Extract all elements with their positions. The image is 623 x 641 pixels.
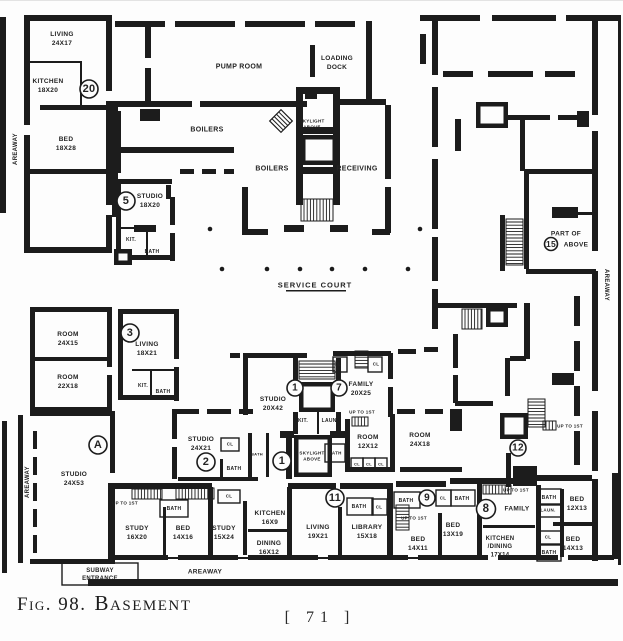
partition-wall bbox=[286, 290, 346, 292]
room-label: LIVING19X21 bbox=[306, 524, 329, 540]
partition-wall bbox=[618, 15, 621, 565]
room-label: SERVICE COURT bbox=[278, 281, 353, 290]
stair-hatch bbox=[506, 219, 523, 265]
wall-segment bbox=[118, 309, 123, 397]
shaft-opening bbox=[505, 418, 524, 435]
wall-segment bbox=[24, 15, 30, 125]
room-label: LIVING24X17 bbox=[50, 31, 73, 47]
wall-segment bbox=[40, 105, 108, 110]
wall-segment bbox=[545, 71, 575, 77]
wall-segment bbox=[420, 34, 426, 64]
fixture-solid bbox=[140, 109, 160, 121]
fixture-solid bbox=[578, 212, 594, 215]
wall-segment bbox=[24, 15, 112, 21]
wall-segment bbox=[592, 15, 598, 115]
room-label: AREAWAY bbox=[13, 133, 19, 165]
partition-wall bbox=[33, 483, 37, 501]
room-label: BATH bbox=[156, 389, 171, 395]
wall-segment bbox=[330, 225, 348, 232]
wall-segment bbox=[424, 347, 438, 352]
room-label: BATH bbox=[542, 550, 557, 556]
wall-segment bbox=[443, 71, 473, 77]
room-label: LAUN. bbox=[322, 418, 339, 424]
wall-segment bbox=[612, 473, 618, 559]
wall-segment bbox=[340, 99, 386, 105]
room-label: AREAWAY bbox=[25, 466, 31, 498]
wall-segment bbox=[118, 395, 178, 400]
wall-segment bbox=[178, 477, 258, 481]
room-label: PUMP ROOM bbox=[216, 63, 263, 70]
room-label: UP TO 1ST bbox=[503, 488, 529, 493]
wall-segment bbox=[106, 215, 112, 251]
wall-segment bbox=[592, 271, 598, 391]
unit-number: 2 bbox=[203, 456, 209, 468]
column-dot bbox=[406, 267, 411, 272]
wall-segment bbox=[510, 356, 526, 361]
wall-segment bbox=[88, 579, 618, 586]
wall-segment bbox=[175, 21, 235, 27]
column-dot bbox=[220, 267, 225, 272]
column-dot bbox=[298, 267, 303, 272]
room-label: KIT. bbox=[298, 418, 308, 424]
room-label: BATH bbox=[328, 451, 341, 456]
room-label: ROOM22X18 bbox=[57, 374, 78, 390]
room-label: LOADINGDOCK bbox=[321, 55, 353, 71]
room-label: FAMILY bbox=[504, 505, 529, 512]
shaft-opening bbox=[119, 254, 128, 261]
wall-segment bbox=[488, 71, 533, 77]
wall-segment bbox=[420, 15, 480, 21]
unit-number: 8 bbox=[483, 503, 490, 515]
wall-segment bbox=[574, 386, 580, 416]
wall-segment bbox=[388, 387, 393, 417]
room-label: STUDIO20X42 bbox=[260, 396, 286, 412]
room-label: SUBWAYENTRANCE bbox=[82, 568, 118, 582]
shaft-opening bbox=[491, 312, 504, 323]
room-label: CL bbox=[227, 442, 234, 447]
wall-segment bbox=[200, 101, 307, 107]
partition-wall bbox=[248, 529, 288, 532]
wall-segment bbox=[175, 409, 199, 414]
wall-segment bbox=[330, 431, 346, 438]
room-label: RECEIVING bbox=[336, 165, 377, 172]
room-label: CL bbox=[226, 494, 233, 499]
unit-number: 9 bbox=[424, 493, 430, 504]
fixture-solid bbox=[552, 373, 574, 385]
unit-number: 7 bbox=[336, 383, 342, 394]
wall-segment bbox=[385, 187, 391, 233]
wall-segment bbox=[2, 421, 7, 573]
wall-segment bbox=[524, 169, 529, 269]
wall-segment bbox=[455, 401, 493, 406]
wall-segment bbox=[0, 17, 6, 213]
partition-wall bbox=[317, 412, 319, 434]
scanned-book-page: 205317A2111121598LIVING24X17KITCHEN18X20… bbox=[0, 0, 623, 641]
partition-wall bbox=[266, 433, 269, 477]
wall-segment bbox=[18, 415, 23, 563]
room-label: FAMILY20X25 bbox=[348, 381, 373, 397]
wall-segment bbox=[592, 479, 598, 561]
room-label: BOILERS bbox=[255, 165, 288, 172]
wall-segment bbox=[24, 135, 30, 251]
room-label: KITCHEN18X20 bbox=[33, 78, 64, 94]
wall-segment bbox=[397, 409, 415, 414]
room-label: LIVING18X21 bbox=[135, 341, 158, 357]
wall-segment bbox=[245, 21, 305, 27]
room-label: BED13X19 bbox=[443, 522, 463, 538]
wall-segment bbox=[310, 45, 315, 77]
room-label: BATH bbox=[167, 506, 182, 512]
room-label: BATH bbox=[251, 451, 263, 456]
wall-segment bbox=[287, 487, 292, 557]
wall-segment bbox=[385, 105, 391, 179]
room-label: BATH bbox=[145, 249, 160, 255]
wall-segment bbox=[526, 269, 596, 274]
wall-segment bbox=[172, 409, 177, 439]
room-label: CL bbox=[440, 496, 447, 501]
unit-number: 12 bbox=[512, 443, 524, 454]
skylight-hatch-diamond bbox=[270, 110, 293, 133]
room-label: UP TO 1ST bbox=[557, 424, 583, 429]
wall-segment bbox=[110, 411, 115, 473]
room-label: STUDIO18X20 bbox=[137, 193, 163, 209]
wall-segment bbox=[400, 467, 462, 472]
room-label: ROOM12X12 bbox=[357, 434, 378, 450]
wall-segment bbox=[432, 87, 438, 147]
partition-wall bbox=[553, 522, 595, 526]
room-label: UP TO 1ST bbox=[349, 410, 375, 415]
partition-wall bbox=[438, 513, 442, 557]
unit-number: 20 bbox=[83, 83, 96, 95]
wall-segment bbox=[333, 351, 391, 356]
room-label: STUDIO24X21 bbox=[188, 436, 214, 452]
wall-segment bbox=[115, 21, 165, 27]
unit-number: 3 bbox=[127, 327, 133, 339]
room-label: CL bbox=[335, 362, 342, 367]
wall-segment bbox=[242, 187, 248, 233]
room-label: KIT. bbox=[126, 237, 136, 243]
partition-wall bbox=[150, 371, 152, 397]
room-label: BED14X11 bbox=[408, 536, 428, 552]
partition-wall bbox=[33, 457, 37, 475]
room-label: BED14X16 bbox=[173, 525, 193, 541]
wall-segment bbox=[568, 555, 614, 560]
wall-segment bbox=[106, 15, 112, 91]
wall-segment bbox=[158, 179, 172, 184]
wall-segment bbox=[574, 431, 580, 465]
wall-segment bbox=[396, 481, 446, 487]
wall-segment bbox=[230, 353, 240, 358]
wall-segment bbox=[118, 309, 176, 314]
wall-segment bbox=[145, 68, 151, 103]
wall-segment bbox=[477, 483, 482, 557]
wall-segment bbox=[425, 409, 443, 414]
wall-segment bbox=[24, 169, 112, 174]
room-label: ROOM24X15 bbox=[57, 331, 78, 347]
wall-segment bbox=[505, 358, 510, 396]
wall-segment bbox=[453, 375, 458, 403]
unit-number: 15 bbox=[546, 239, 556, 249]
wall-segment bbox=[243, 353, 248, 415]
wall-segment bbox=[242, 229, 268, 235]
room-label: LIBRARY15X18 bbox=[352, 524, 383, 540]
room-label: CL bbox=[545, 535, 552, 540]
wall-segment bbox=[280, 431, 294, 438]
wall-segment bbox=[524, 303, 530, 359]
wall-segment bbox=[170, 197, 175, 225]
room-label: BATH bbox=[352, 504, 367, 510]
wall-segment bbox=[450, 478, 522, 484]
partition-wall bbox=[33, 535, 37, 553]
wall-segment bbox=[388, 353, 393, 379]
room-label: CL bbox=[376, 505, 383, 510]
fixture-solid bbox=[450, 409, 462, 431]
wall-segment bbox=[166, 185, 171, 199]
column-dot bbox=[418, 227, 423, 232]
wall-segment bbox=[180, 169, 194, 174]
wall-segment bbox=[526, 169, 596, 174]
room-label: BATH bbox=[455, 496, 470, 502]
partition-wall bbox=[243, 501, 247, 555]
partition-wall bbox=[33, 431, 37, 449]
room-label: BOILERS bbox=[190, 126, 223, 133]
stair-hatch bbox=[528, 399, 545, 427]
room-label: KITCHEN/DINING17X14 bbox=[486, 536, 515, 559]
room-label: DINING16X12 bbox=[257, 540, 282, 556]
partition-wall bbox=[33, 509, 37, 527]
wall-segment bbox=[284, 225, 304, 232]
wall-segment bbox=[432, 159, 438, 229]
room-label: BATH bbox=[399, 498, 414, 504]
wall-segment bbox=[366, 21, 372, 105]
stair-hatch bbox=[352, 417, 368, 426]
wall-segment bbox=[432, 237, 438, 281]
wall-segment bbox=[30, 307, 112, 312]
unit-number: A bbox=[94, 439, 102, 451]
wall-segment bbox=[145, 26, 151, 58]
room-label: CL bbox=[366, 461, 372, 466]
partition-wall bbox=[163, 507, 166, 555]
wall-segment bbox=[239, 409, 253, 414]
room-label: STUDY16X20 bbox=[125, 525, 149, 541]
wall-segment bbox=[172, 447, 177, 479]
wall-segment bbox=[174, 309, 179, 359]
shaft-opening bbox=[304, 387, 331, 408]
wall-segment bbox=[455, 119, 461, 151]
wall-segment bbox=[345, 419, 350, 469]
room-label: BATH bbox=[542, 495, 557, 501]
wall-segment bbox=[112, 101, 192, 107]
wall-segment bbox=[288, 483, 336, 489]
wall-segment bbox=[207, 409, 231, 414]
partition-wall bbox=[483, 525, 535, 528]
wall-segment bbox=[500, 215, 505, 271]
partition-wall bbox=[140, 557, 470, 559]
floor-plan: 205317A2111121598LIVING24X17KITCHEN18X20… bbox=[0, 1, 623, 593]
wall-segment bbox=[577, 111, 589, 127]
room-label: ROOM24X18 bbox=[409, 432, 430, 448]
fixture-solid bbox=[134, 225, 156, 232]
fixture-solid bbox=[552, 207, 578, 218]
page-number: [ 71 ] bbox=[0, 609, 623, 627]
wall-segment bbox=[106, 101, 112, 205]
unit-number: 11 bbox=[329, 492, 341, 504]
wall-segment bbox=[208, 487, 213, 557]
room-label: UP TO 1ST bbox=[112, 501, 138, 506]
partition-wall bbox=[220, 459, 223, 479]
room-label: PART OF bbox=[551, 230, 581, 237]
wall-segment bbox=[453, 334, 458, 368]
wall-segment bbox=[592, 131, 598, 251]
wall-segment bbox=[116, 179, 162, 184]
wall-segment bbox=[224, 169, 234, 174]
wall-segment bbox=[24, 247, 112, 253]
room-label: UP TO 1ST bbox=[401, 516, 427, 521]
column-dot bbox=[363, 267, 368, 272]
wall-segment bbox=[520, 119, 525, 171]
wall-segment bbox=[558, 115, 578, 120]
fixture-solid bbox=[305, 89, 317, 99]
room-label: LAUN. bbox=[540, 508, 555, 513]
wall-segment bbox=[390, 414, 395, 469]
room-label: CL bbox=[354, 461, 360, 466]
wall-segment bbox=[30, 357, 108, 361]
shaft-opening bbox=[306, 140, 333, 161]
wall-segment bbox=[432, 289, 438, 329]
room-label: ABOVE bbox=[564, 241, 589, 248]
wall-segment bbox=[340, 483, 392, 489]
wall-segment bbox=[315, 21, 355, 27]
room-label: BED18X28 bbox=[56, 136, 76, 152]
room-label: CL bbox=[373, 362, 380, 367]
wall-segment bbox=[492, 15, 556, 21]
wall-segment bbox=[574, 341, 580, 371]
room-label: STUDY15X24 bbox=[212, 525, 236, 541]
room-label: STUDIO24X53 bbox=[61, 471, 87, 487]
wall-segment bbox=[372, 229, 390, 235]
room-label: BED14X13 bbox=[563, 536, 583, 552]
wall-segment bbox=[387, 483, 393, 557]
shaft-opening bbox=[481, 107, 504, 124]
room-label: BED12X13 bbox=[567, 496, 587, 512]
wall-segment bbox=[30, 411, 115, 416]
room-label: KIT. bbox=[138, 383, 148, 389]
wall-segment bbox=[398, 349, 416, 354]
fixture-solid bbox=[513, 466, 537, 486]
wall-segment bbox=[243, 353, 307, 358]
column-dot bbox=[265, 267, 270, 272]
partition-wall bbox=[338, 507, 342, 557]
unit-number: 5 bbox=[123, 195, 129, 207]
room-label: BATH bbox=[227, 466, 242, 472]
room-label: KITCHEN16X9 bbox=[255, 510, 286, 526]
column-dot bbox=[208, 227, 213, 232]
partition-wall bbox=[132, 369, 176, 371]
wall-segment bbox=[108, 485, 113, 557]
wall-segment bbox=[432, 15, 438, 75]
wall-segment bbox=[112, 147, 234, 153]
wall-segment bbox=[202, 169, 216, 174]
column-dot bbox=[330, 267, 335, 272]
wall-segment bbox=[574, 296, 580, 326]
partition-wall bbox=[28, 61, 80, 63]
unit-number: 1 bbox=[279, 455, 285, 467]
unit-number: 1 bbox=[292, 383, 298, 394]
room-label: CL bbox=[378, 461, 384, 466]
wall-segment bbox=[592, 411, 598, 471]
room-label: AREAWAY bbox=[603, 269, 609, 301]
room-label: AREAWAY bbox=[188, 568, 223, 575]
